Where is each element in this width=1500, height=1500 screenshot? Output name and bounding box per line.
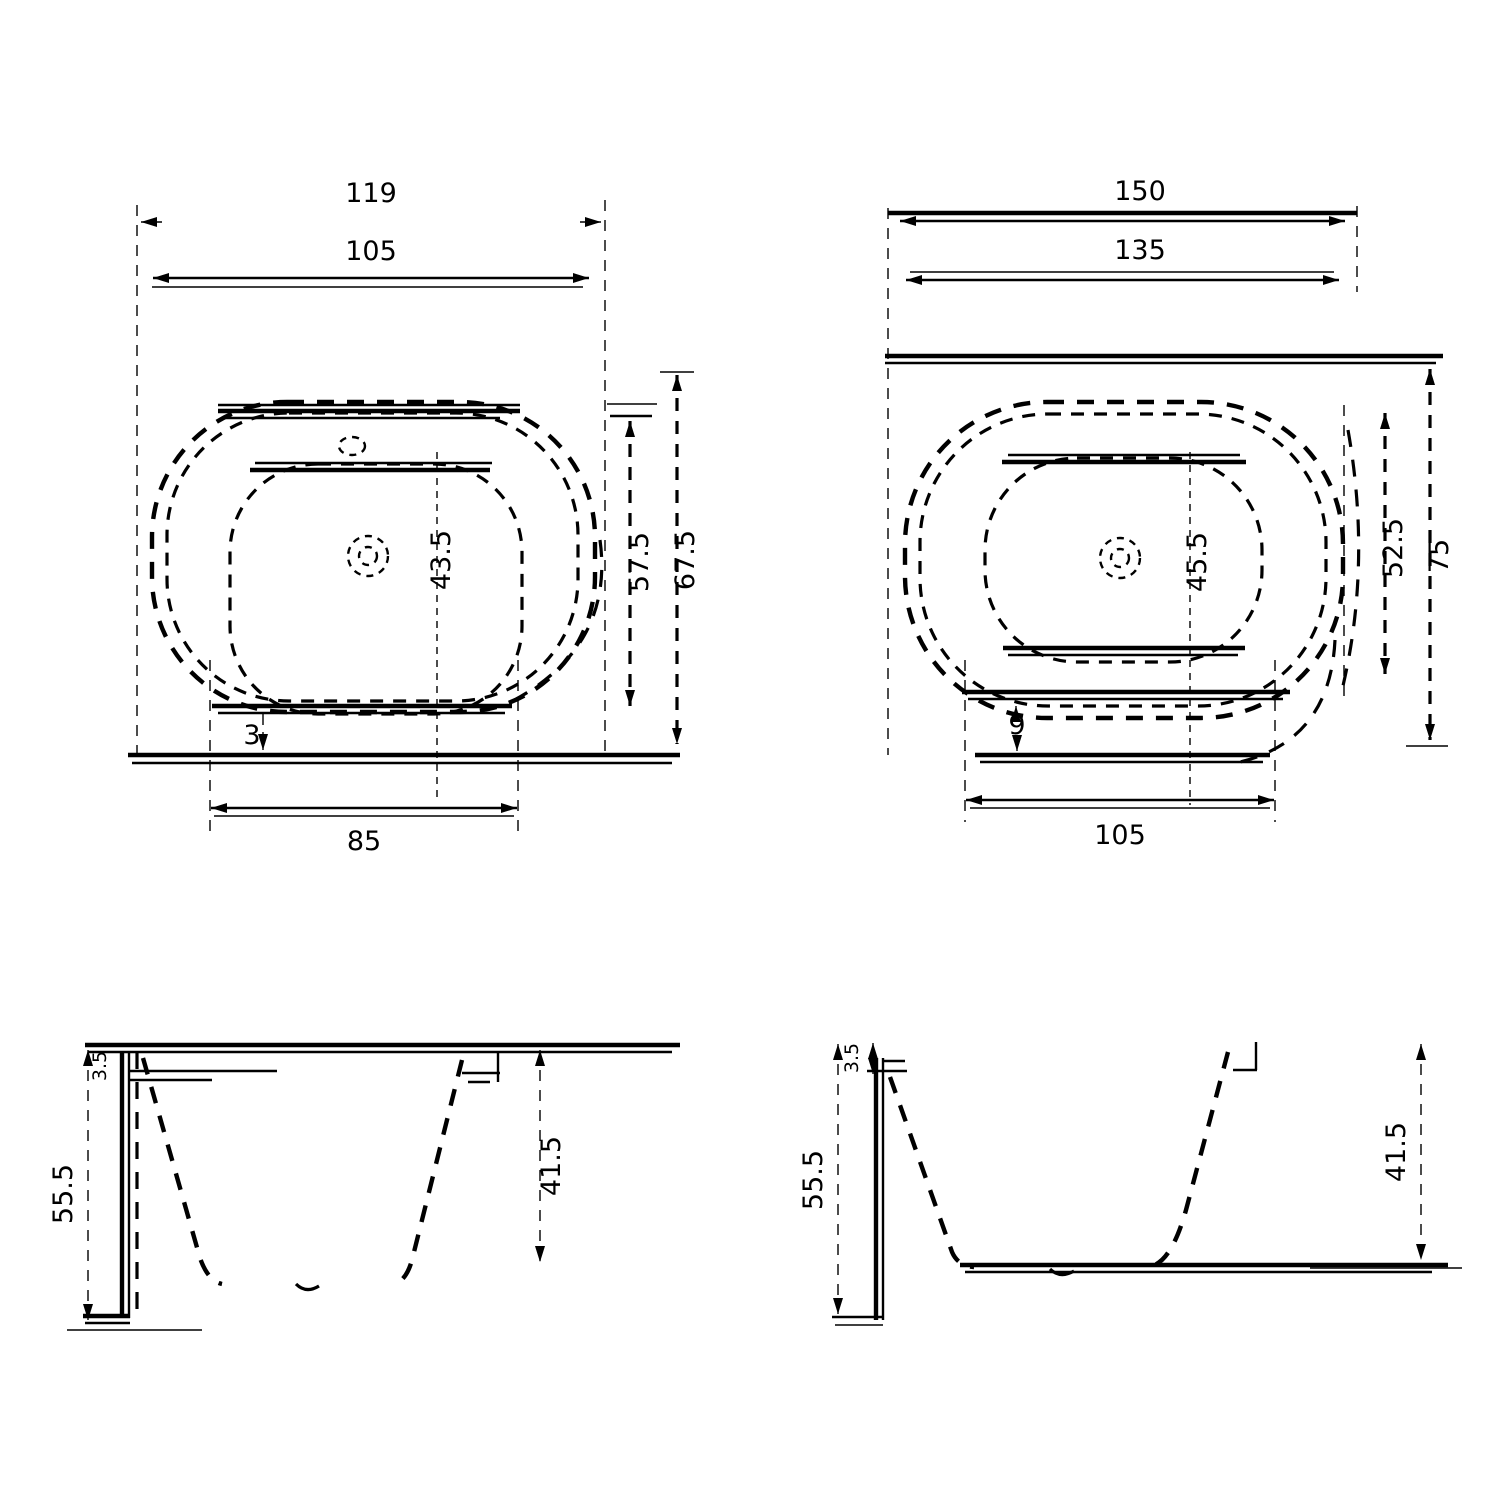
dim-edge-gap-label: 9 <box>1008 710 1025 741</box>
drain-icon <box>348 536 388 576</box>
rim-hook-lines <box>1233 1042 1257 1070</box>
rim-return-lines <box>130 1052 500 1082</box>
tub-outer-outline <box>152 402 595 712</box>
dim-inner-depth-label: 41.5 <box>1381 1122 1412 1182</box>
plan-view-right: 150 135 45.5 9 105 52. <box>885 176 1455 851</box>
basin-slope-left <box>143 1058 222 1284</box>
tub-outer-outline <box>905 402 1343 718</box>
right-tick-lines <box>607 372 694 404</box>
dim-outer-width-label: 150 <box>1114 176 1166 207</box>
dim-inner-depth-label: 41.5 <box>536 1136 567 1196</box>
dim-depth-inner-label: 57.5 <box>624 532 655 592</box>
dim-bottom-width-label: 105 <box>1094 820 1146 851</box>
dim-depth-inner-label: 52.5 <box>1378 518 1409 578</box>
bathtub-drawing-canvas: 119 105 43.5 3 85 57.5 <box>0 0 1500 1500</box>
dim-center-offset-label: 45.5 <box>1182 532 1213 592</box>
dim-rim-thickness-label: 3.5 <box>89 1051 111 1081</box>
dim-rim-thickness-label: 3.5 <box>841 1043 863 1073</box>
dim-outer-width-label: 119 <box>345 178 397 209</box>
side-section-view: 55.5 3.5 41.5 <box>798 1042 1462 1325</box>
extension-lines <box>888 206 1357 822</box>
dim-rim-width-label: 105 <box>345 236 397 267</box>
dim-rim-width-label: 135 <box>1114 235 1166 266</box>
technical-drawing-page: 119 105 43.5 3 85 57.5 <box>0 0 1500 1500</box>
dim-depth-outer-label: 75 <box>1424 539 1455 573</box>
dim-center-offset-label: 43.5 <box>426 530 457 590</box>
basin-floor-outline <box>985 458 1262 662</box>
basin-slope-left <box>890 1077 974 1267</box>
plan-view-left: 119 105 43.5 3 85 57.5 <box>128 178 701 857</box>
dim-bottom-width-label: 85 <box>347 826 381 857</box>
basin-slope-right <box>392 1060 462 1285</box>
apron-arc-lower <box>1240 640 1335 762</box>
apron-arc <box>505 540 602 705</box>
extension-lines <box>137 200 605 838</box>
basin-slope-right <box>1152 1052 1228 1266</box>
end-section-view: 55.5 3.5 41.5 <box>48 1045 680 1330</box>
drain-icon <box>1100 538 1140 578</box>
dim-total-height-label: 55.5 <box>48 1164 79 1224</box>
dim-depth-outer-label: 67.5 <box>670 530 701 590</box>
basin-floor-outline <box>230 464 522 714</box>
dim-edge-gap-label: 3 <box>243 720 260 751</box>
dim-total-height-label: 55.5 <box>798 1150 829 1210</box>
drain-icon <box>296 1284 319 1290</box>
overflow-icon <box>339 437 365 455</box>
